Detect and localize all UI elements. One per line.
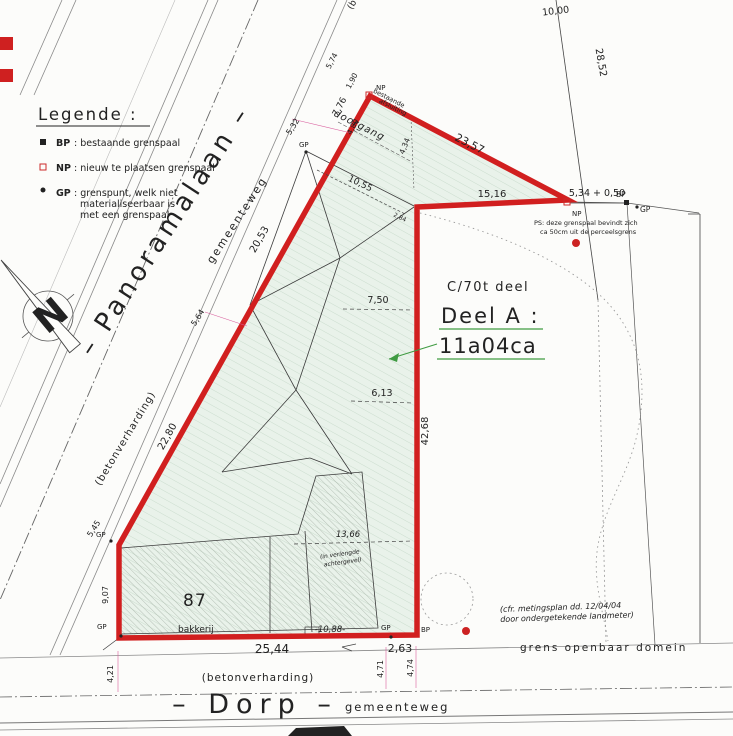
dim-6-13: 6,13 [371, 388, 392, 399]
dim-5-34: 5,34 + 0,50 [569, 188, 625, 199]
dim-4-74: 4,74 [406, 659, 415, 677]
dim-5-32: 5,32 [284, 117, 301, 137]
legend-gp-code: GP [56, 188, 71, 199]
np-label: NP [572, 210, 581, 218]
dim-4-21: 4,21 [106, 665, 115, 683]
legend-gp-desc2: materialiseerbaar is [80, 199, 175, 210]
gp-label: GP [96, 531, 106, 539]
gp-label: GP [381, 624, 391, 632]
dim-5-74: 5,74 [324, 51, 340, 70]
dim-5-64: 5,64 [189, 308, 206, 328]
dim-4-71: 4,71 [376, 660, 385, 678]
parcel-name: Deel A : [441, 304, 540, 328]
dim-9-07: 9,07 [101, 586, 110, 604]
rest-parcel-dotted-boundary [420, 213, 642, 641]
gp-marker [389, 635, 392, 638]
dim-1-90: 1,90 [344, 71, 360, 90]
dorp-name: – Dorp – [172, 689, 338, 720]
dim-15-16: 15,16 [478, 189, 507, 200]
dim-7-50: 7,50 [367, 295, 388, 306]
gp-label: GP [299, 141, 309, 149]
gp-marker [109, 539, 112, 542]
building-number: 87 [183, 591, 207, 611]
gp-marker [304, 150, 307, 153]
dim-10-88: -10,88- [315, 625, 345, 635]
dim-25-44: 25,44 [255, 642, 289, 656]
gp-marker [119, 634, 122, 637]
road-label-fragment: (b [346, 0, 359, 12]
red-dot [462, 627, 470, 635]
dotted-circle-mark [421, 573, 473, 625]
legend-gp-desc: : grenspunt, welk niet [74, 188, 178, 199]
legend-bp-symbol [40, 139, 46, 145]
public-domain-label: grens openbaar domein [520, 642, 687, 654]
dim-2-63: 2,63 [388, 642, 413, 655]
dorp-surface: (betonverharding) [202, 672, 314, 684]
panoramalaan-type: gemeenteweg [204, 174, 270, 266]
ps-note-line2: ca 50cm uit de perceelsgrens [540, 228, 637, 236]
red-scan-mark [0, 37, 13, 50]
dim-13-66: 13,66 [336, 530, 361, 540]
legend-gp-desc3: met een grenspaal [80, 210, 169, 221]
legend-gp-symbol [41, 188, 46, 193]
dim-42-68: 42,68 [420, 417, 431, 446]
legend-bp-code: BP [56, 138, 70, 149]
gp-marker [635, 205, 638, 208]
legend-title: Legende : [38, 105, 138, 124]
dim-20-53: 20,53 [248, 225, 272, 255]
gp-label: GP [97, 623, 107, 631]
legend-np-desc: : nieuw te plaatsen grenspaal [74, 163, 215, 174]
legend-np-symbol [40, 164, 46, 170]
legend-bp-desc: : bestaande grenspaal [74, 138, 180, 149]
dim-28-52: 28,52 [593, 48, 609, 78]
bp-label: BP [421, 626, 430, 634]
gp-label: GP [640, 205, 651, 214]
red-dot [572, 239, 580, 247]
building-use: bakkerij [178, 625, 214, 635]
dim-10-00: 10,00 [542, 4, 570, 18]
bp-marker [624, 200, 629, 205]
survey-plan-page: NP NP BP GP GP GP GP GP BP 5,74 1,90 7,7… [0, 0, 733, 736]
ps-note-line1: PS: deze grenspaal bevindt zich [534, 219, 638, 227]
legend-np-code: NP [56, 163, 71, 174]
parcel-area: 11a04ca [439, 334, 537, 358]
red-scan-mark [0, 69, 13, 82]
road-dorp-lines [0, 643, 733, 730]
dorp-type: gemeenteweg [345, 700, 449, 714]
parcel-code: C/70t deel [447, 280, 529, 295]
plan-canvas: NP NP BP GP GP GP GP GP BP 5,74 1,90 7,7… [0, 0, 733, 736]
black-scan-shape [288, 726, 352, 736]
panoramalaan-surface: (betonverharding) [93, 390, 158, 488]
